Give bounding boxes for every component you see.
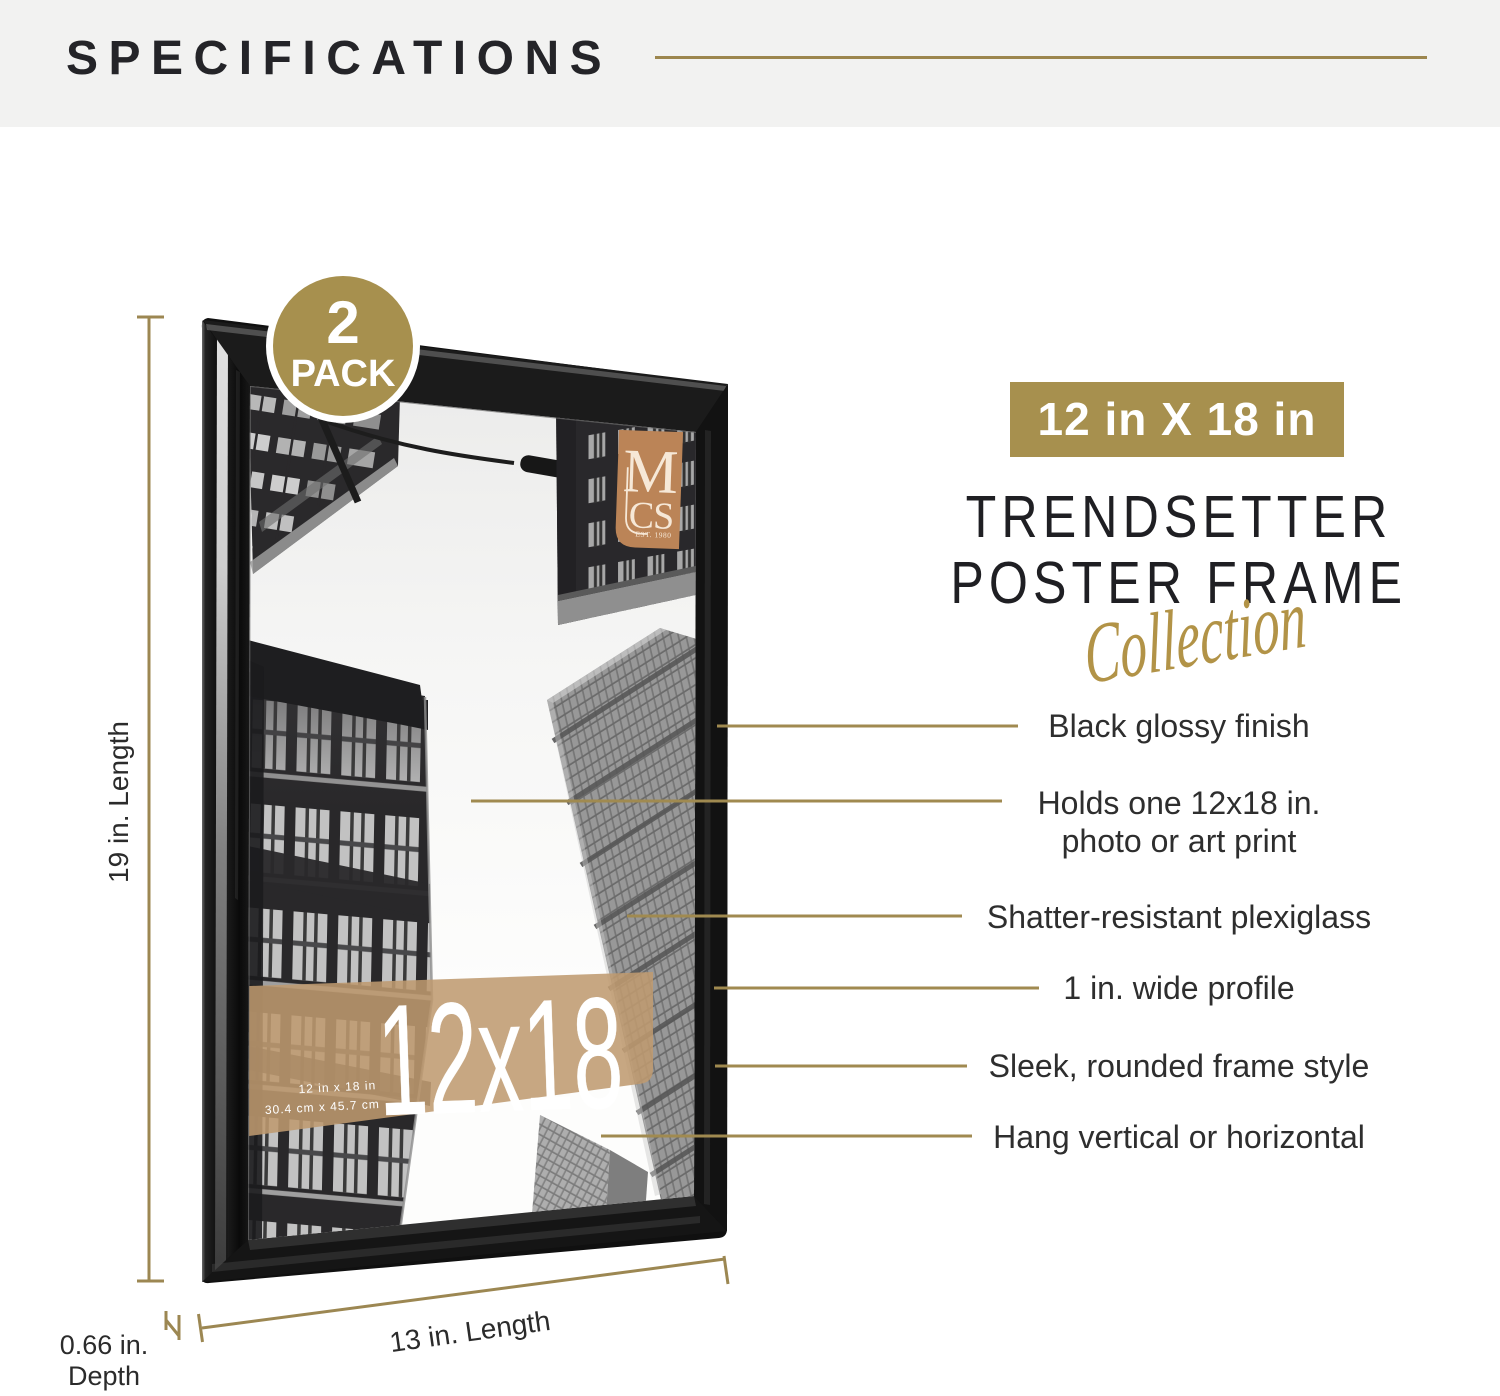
svg-text:2: 2 xyxy=(326,289,359,356)
svg-text:EST. 1980: EST. 1980 xyxy=(635,530,671,540)
svg-text:12x18: 12x18 xyxy=(374,965,625,1149)
svg-text:PACK: PACK xyxy=(291,353,396,395)
